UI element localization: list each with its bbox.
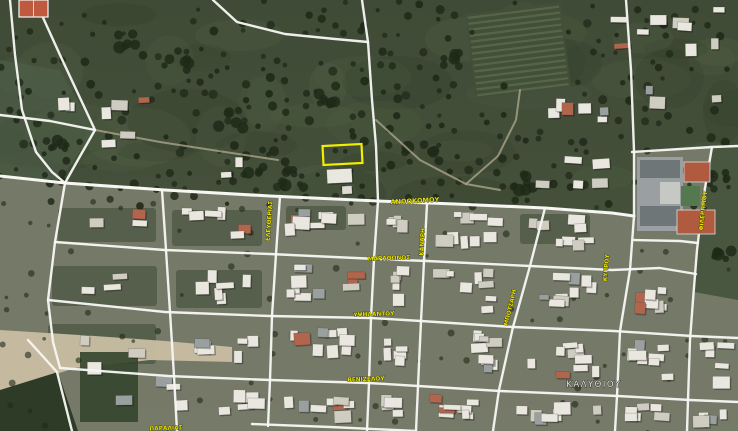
sports-court-topleft bbox=[19, 0, 48, 17]
satellite-map[interactable]: ΑΝΘΟΚΟΜΟΥΕΛΕΥΘΕΡΙΑΣΜΑΡΑΘΩΝΟΣΥΨΗΛΑΝΤΟΥΒΕΝ… bbox=[0, 0, 738, 431]
street-label: ΠΑΡΑΛΙΑΣ bbox=[149, 425, 182, 431]
place-label: ΚΑΛΥΘΙΟΥ bbox=[566, 380, 621, 390]
map-viewport[interactable]: ΑΝΘΟΚΟΜΟΥΕΛΕΥΘΕΡΙΑΣΜΑΡΑΘΩΝΟΣΥΨΗΛΑΝΤΟΥΒΕΝ… bbox=[0, 0, 738, 431]
sports-court bbox=[684, 162, 710, 182]
vineyard-rows bbox=[465, 2, 571, 99]
